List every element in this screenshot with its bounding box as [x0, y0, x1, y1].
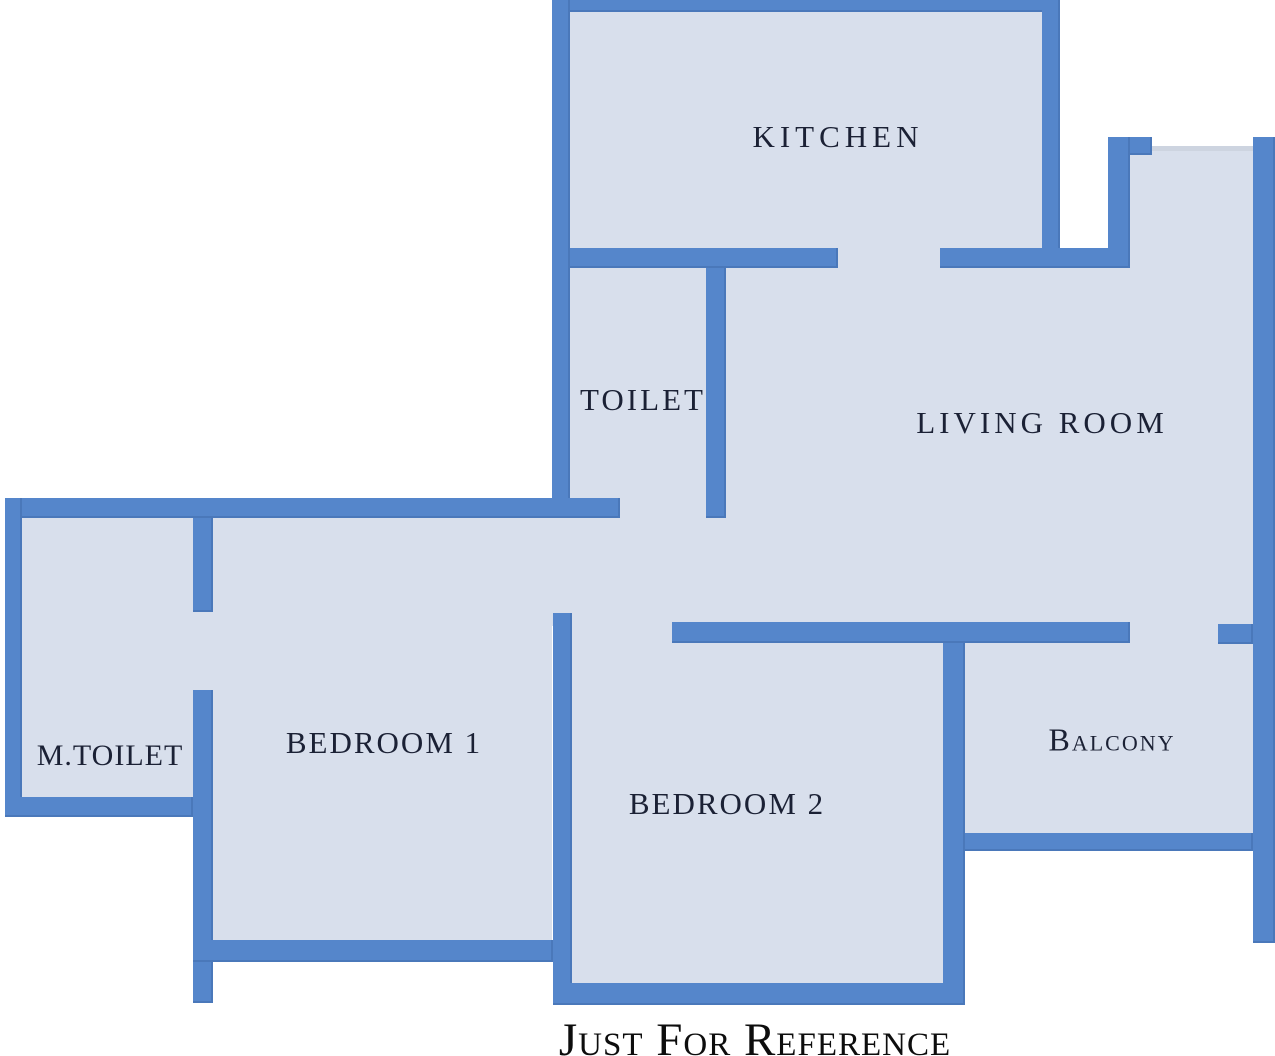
wall-living-notch: [1108, 137, 1130, 268]
room-area-living-upper: [1130, 150, 1253, 270]
wall-toilet-right: [706, 268, 726, 518]
room-label-bedroom-1: BEDROOM 1: [286, 725, 482, 761]
wall-balcony-top-stub: [1218, 624, 1253, 644]
wall-bedroom2-right: [943, 643, 965, 1003]
door-opening-balcony: [1130, 620, 1218, 646]
floor-plan: KITCHEN TOILET LIVING ROOM M.TOILET BEDR…: [0, 0, 1275, 1056]
room-label-balcony: Balcony: [1048, 722, 1175, 759]
wall-mid-long: [5, 498, 620, 518]
door-opening-m-toilet: [191, 612, 215, 690]
wall-kitchen-top: [552, 0, 1060, 12]
wall-balcony-bottom: [965, 833, 1253, 851]
wall-bedroom2-top: [672, 622, 1130, 643]
wall-kitchen-right: [1042, 0, 1060, 268]
wall-living-top-stub: [1130, 137, 1152, 155]
room-label-bedroom-2: BEDROOM 2: [629, 786, 825, 822]
wall-kitchen-bottom-right: [940, 248, 1130, 268]
wall-bedroom1-bottom: [193, 940, 553, 962]
wall-kitchen-left: [552, 0, 570, 518]
wall-right-outer: [1253, 137, 1275, 943]
window-line-living-top: [1152, 146, 1253, 151]
wall-kitchen-bottom-left: [570, 248, 838, 268]
room-label-m-toilet: M.TOILET: [37, 739, 184, 773]
room-area-living-main: [726, 265, 1253, 625]
room-label-toilet: TOILET: [580, 382, 706, 418]
wall-left-outer: [5, 498, 22, 817]
room-label-kitchen: KITCHEN: [752, 119, 923, 155]
room-label-living-room: LIVING ROOM: [916, 405, 1168, 441]
wall-m-toilet-bottom: [5, 797, 193, 817]
door-opening-kitchen: [838, 246, 940, 270]
wall-m-toilet-right-upper: [193, 518, 213, 612]
footer-caption: Just For Reference: [559, 1013, 951, 1056]
wall-bedroom-divider: [553, 613, 572, 1005]
wall-bedroom2-bottom: [553, 983, 965, 1005]
